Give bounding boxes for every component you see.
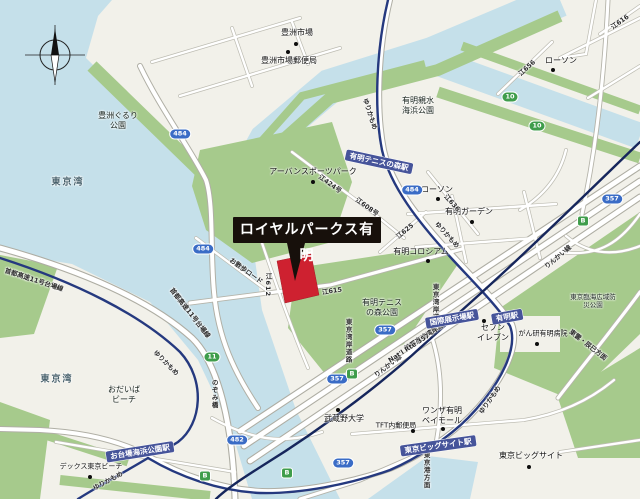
toyosu-market: 豊洲市場	[281, 28, 313, 38]
toyosu-market-post-office-dot	[286, 50, 290, 54]
ariake-shinsui-kaihin-park: 有明親水 海浜公園	[402, 96, 434, 116]
tokyo-rinkai-disaster-prevention-park: 東京臨海広域防災公園	[570, 293, 617, 309]
route-shield-357: 357	[602, 195, 622, 204]
cancer-institute-hospital: がん研有明病院	[519, 330, 568, 339]
rail-label-yurikamome: ゆりかもめ	[477, 384, 502, 415]
route-shield-357: 357	[375, 326, 395, 335]
tokyo-big-sight: 東京ビッグサイト	[499, 451, 563, 461]
tokyo-port-label: 東京港方面	[422, 451, 430, 489]
property-callout: ロイヤルパークス有明	[233, 217, 381, 243]
seven-eleven-dot	[482, 319, 486, 323]
seven-eleven: セブン イレブン	[477, 323, 509, 343]
road-label-e615: 江615	[321, 286, 342, 297]
wanza-ariake-baymall-dot	[441, 427, 445, 431]
ariake-coliseum: 有明コロシアム	[393, 247, 448, 257]
map-canvas: ロイヤルパークス有明 東京湾東京湾豊洲ぐるり 公園有明親水 海浜公園有明テニス …	[0, 0, 640, 499]
musashino-university-dot	[336, 408, 340, 412]
route-shield-11: 11	[204, 353, 219, 362]
route-shield-B: B	[282, 469, 292, 478]
route-shield-484: 484	[402, 186, 422, 195]
odaiba-beach: おだいば ビーチ	[108, 385, 140, 405]
road-label-e612: 江612	[264, 273, 272, 297]
tokyo-bay-south: 東京湾	[40, 374, 73, 385]
road-label-osanpo: お散歩ロード	[228, 256, 264, 285]
tokyo-big-sight-dot	[527, 465, 531, 469]
route-shield-B: B	[347, 370, 357, 379]
urban-sports-park-dot	[311, 180, 315, 184]
expressway-label-daiba-line: 首都高速11号台場線	[168, 286, 212, 339]
lawson-shinonome-dot	[551, 68, 555, 72]
wangan-road-label: 東京湾岸道路	[344, 319, 352, 364]
shinonome-tatsumi-label: 東雲・辰巳方面	[568, 328, 609, 362]
toyosu-gururi-park: 豊洲ぐるり 公園	[98, 111, 138, 131]
ariake-tennis-no-mori-park: 有明テニス の森公園	[362, 298, 402, 318]
rail-label-yurikamome: ゆりかもめ	[152, 349, 181, 378]
rail-label-yurikamome: ゆりかもめ	[433, 220, 461, 250]
expressway-label-daiba-line: 首都高速11号台場線	[4, 267, 65, 294]
urban-sports-park: アーバンスポーツパーク	[269, 167, 357, 177]
tft-post-office-dot	[411, 429, 415, 433]
cancer-institute-hospital-dot	[535, 342, 539, 346]
ariake-garden-dot	[470, 220, 474, 224]
decks-tokyo-beach: デックス東京ビーチ	[60, 463, 123, 472]
nozomi-bridge-label: のぞみ橋	[210, 379, 218, 409]
lawson-shinonome: ローソン	[545, 56, 577, 66]
decks-tokyo-beach-dot	[88, 475, 92, 479]
road-label-e608: 江608号	[354, 196, 380, 218]
route-shield-B: B	[200, 472, 210, 481]
tokyo-big-sight-station: 東京ビッグサイト駅	[400, 435, 476, 457]
road-label-e625: 江625	[395, 221, 416, 240]
route-shield-10: 10	[502, 93, 517, 102]
map-labels-layer: ロイヤルパークス有明 東京湾東京湾豊洲ぐるり 公園有明親水 海浜公園有明テニス …	[0, 0, 640, 499]
route-shield-484: 484	[170, 130, 190, 139]
wanza-ariake-baymall: ワンザ有明 ベイモール	[422, 406, 462, 426]
route-shield-482: 482	[227, 436, 247, 445]
rail-label-yurikamome: ゆりかもめ	[361, 97, 379, 130]
toyosu-market-post-office: 豊洲市場郵便局	[261, 56, 317, 66]
route-shield-357: 357	[327, 375, 347, 384]
rail-label-yurikamome: ゆりかもめ	[92, 470, 125, 492]
route-357-label: Nat'l Rte 357	[387, 332, 431, 365]
route-shield-B: B	[578, 217, 588, 226]
rail-label-rinkai: りんかい線	[543, 243, 573, 270]
ariake-coliseum-dot	[426, 259, 430, 263]
route-shield-10: 10	[529, 122, 544, 131]
odaiba-kaihin-koen-station: お台場海浜公園駅	[106, 441, 175, 463]
tokyo-bay-north: 東京湾	[51, 177, 84, 188]
musashino-university: 武蔵野大学	[324, 414, 364, 424]
lawson-ariake-dot	[436, 197, 440, 201]
route-shield-484: 484	[193, 245, 213, 254]
route-shield-357: 357	[333, 459, 353, 468]
tft-post-office: TFT内郵便局	[376, 422, 416, 431]
toyosu-market-dot	[294, 42, 298, 46]
road-label-e656: 江656	[517, 58, 537, 77]
road-label-e616: 江616	[609, 13, 630, 31]
